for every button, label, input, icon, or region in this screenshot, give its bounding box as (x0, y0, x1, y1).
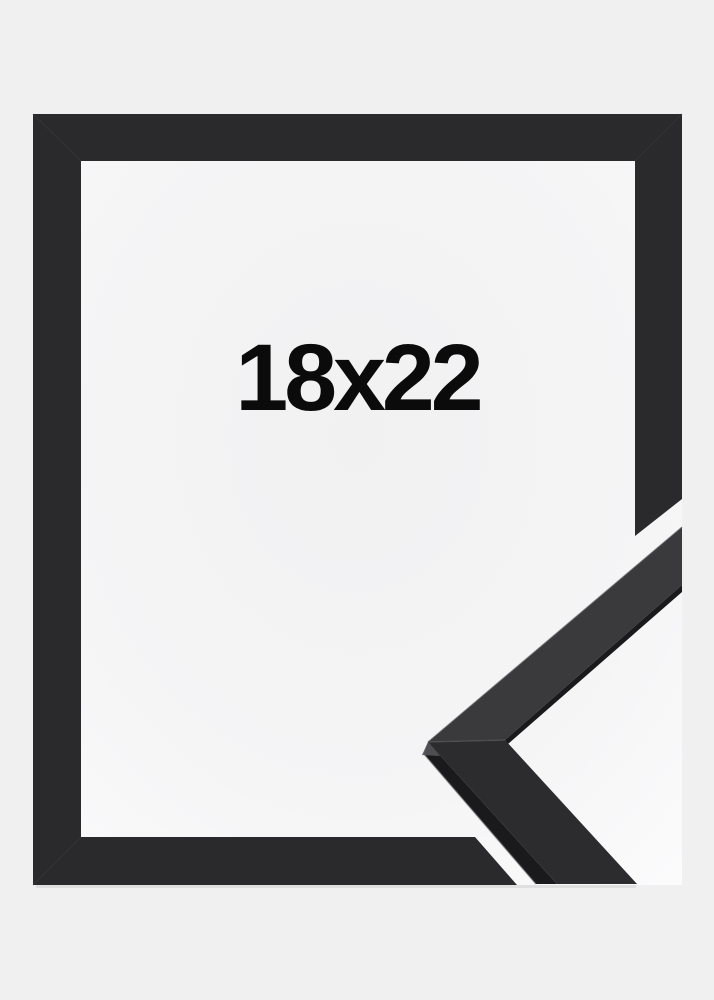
product-photo: 18x22 (0, 0, 714, 1000)
frame-illustration (0, 0, 714, 1000)
frame-shadow (36, 885, 636, 888)
size-label: 18x22 (81, 330, 634, 426)
frame-backing (33, 114, 682, 885)
